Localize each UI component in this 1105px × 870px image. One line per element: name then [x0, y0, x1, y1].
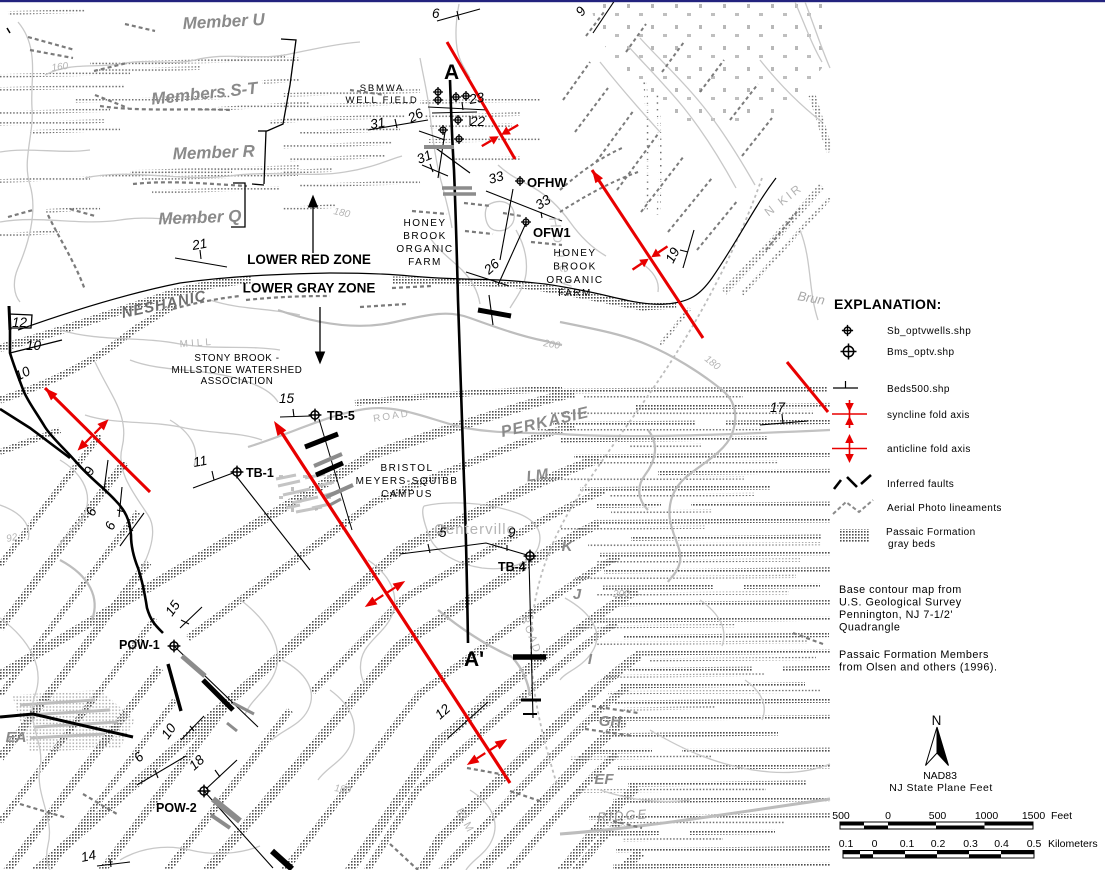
svg-text:31: 31 [415, 147, 435, 167]
svg-text:10: 10 [26, 338, 42, 353]
svg-text:FARM: FARM [408, 257, 442, 268]
svg-text:9: 9 [508, 525, 516, 540]
svg-text:Brun: Brun [796, 288, 826, 308]
svg-text:9: 9 [81, 464, 98, 477]
svg-text:200: 200 [541, 338, 561, 352]
svg-text:U.S. Geological Survey: U.S. Geological Survey [839, 597, 962, 609]
svg-text:0.4: 0.4 [994, 838, 1009, 850]
svg-text:26: 26 [480, 256, 502, 278]
svg-text:Quadrangle: Quadrangle [839, 622, 900, 634]
svg-text:BROOK: BROOK [553, 262, 597, 273]
svg-text:FARM: FARM [558, 288, 592, 299]
svg-text:5: 5 [439, 525, 447, 540]
svg-text:Feet: Feet [1051, 810, 1072, 822]
svg-text:180: 180 [702, 354, 722, 373]
svg-text:500: 500 [832, 810, 850, 822]
svg-text:HONEY: HONEY [403, 218, 446, 229]
svg-text:STONY BROOK -: STONY BROOK - [194, 353, 279, 364]
svg-text:WELL FIELD: WELL FIELD [345, 95, 418, 106]
svg-text:NJ State Plane Feet: NJ State Plane Feet [889, 782, 992, 794]
svg-text:Kilometers: Kilometers [1048, 838, 1098, 850]
svg-text:POW-2: POW-2 [156, 801, 197, 815]
svg-text:22: 22 [469, 114, 486, 129]
svg-text:Member R: Member R [172, 142, 256, 164]
svg-text:0.5: 0.5 [1027, 838, 1042, 850]
svg-text:Base contour map from: Base contour map from [839, 584, 962, 596]
svg-text:ORGANIC: ORGANIC [396, 244, 453, 255]
svg-text:21: 21 [190, 236, 208, 254]
svg-text:Bms_optv.shp: Bms_optv.shp [887, 347, 954, 358]
svg-text:33: 33 [487, 168, 506, 187]
svg-text:TB-4: TB-4 [498, 560, 526, 574]
svg-text:BROOK: BROOK [403, 231, 447, 242]
svg-text:0.1: 0.1 [900, 838, 915, 850]
svg-text:200: 200 [612, 589, 630, 600]
svg-text:Aerial Photo lineaments: Aerial Photo lineaments [887, 503, 1002, 514]
svg-text:RIDGE: RIDGE [597, 806, 649, 825]
svg-text:I: I [588, 651, 593, 668]
svg-text:92: 92 [5, 532, 19, 545]
svg-text:Passaic Formation Members: Passaic Formation Members [839, 649, 989, 661]
svg-text:EA: EA [6, 729, 27, 746]
svg-text:0.3: 0.3 [963, 838, 978, 850]
svg-text:ROAD: ROAD [518, 614, 543, 655]
svg-text:OFHW: OFHW [527, 175, 567, 190]
svg-text:MILLSTONE WATERSHED: MILLSTONE WATERSHED [172, 365, 303, 376]
svg-text:MEYERS-SQUIBB: MEYERS-SQUIBB [356, 476, 459, 487]
svg-text:syncline fold axis: syncline fold axis [887, 410, 970, 421]
svg-text:LOWER GRAY ZONE: LOWER GRAY ZONE [243, 281, 376, 296]
svg-text:TB-1: TB-1 [246, 466, 274, 480]
svg-text:6: 6 [432, 6, 440, 21]
svg-text:anticline fold axis: anticline fold axis [887, 444, 971, 455]
svg-text:500: 500 [929, 810, 947, 822]
svg-text:180: 180 [334, 783, 352, 796]
svg-text:23: 23 [467, 89, 486, 107]
svg-text:15: 15 [162, 597, 183, 618]
svg-text:160: 160 [51, 61, 69, 74]
svg-text:LM: LM [525, 466, 549, 486]
svg-text:9: 9 [573, 3, 590, 19]
svg-text:31: 31 [369, 115, 386, 132]
svg-text:15: 15 [279, 391, 295, 406]
svg-text:N: N [932, 713, 942, 728]
svg-text:17: 17 [770, 400, 786, 415]
svg-text:CAMPUS: CAMPUS [381, 489, 433, 500]
svg-text:0.2: 0.2 [931, 838, 946, 850]
svg-text:12: 12 [432, 701, 454, 723]
svg-text:Members S-T: Members S-T [150, 78, 260, 108]
svg-text:K: K [562, 538, 574, 555]
svg-text:0: 0 [885, 810, 891, 822]
svg-text:A: A [444, 61, 459, 84]
svg-text:LOWER RED ZONE: LOWER RED ZONE [247, 252, 371, 267]
svg-text:EF: EF [594, 771, 614, 788]
svg-text:POW-1: POW-1 [119, 638, 160, 652]
svg-text:10: 10 [158, 720, 179, 741]
svg-text:Member U: Member U [182, 10, 266, 33]
svg-text:MILL: MILL [179, 337, 214, 350]
svg-text:SBMWA: SBMWA [360, 83, 405, 94]
svg-text:TB-5: TB-5 [327, 409, 355, 423]
svg-text:gray beds: gray beds [888, 539, 936, 550]
svg-text:Member Q: Member Q [158, 207, 242, 229]
svg-text:BRISTOL: BRISTOL [380, 463, 433, 474]
svg-text:OFW1: OFW1 [533, 225, 571, 240]
svg-text:Beds500.shp: Beds500.shp [887, 384, 950, 395]
svg-text:6: 6 [102, 519, 119, 532]
svg-text:ORGANIC: ORGANIC [546, 275, 603, 286]
svg-text:J: J [573, 586, 582, 603]
svg-text:14: 14 [80, 847, 98, 865]
svg-text:1500: 1500 [1022, 810, 1046, 822]
svg-text:GH: GH [599, 713, 623, 730]
svg-text:ASSOCIATION: ASSOCIATION [201, 376, 274, 387]
svg-text:Sb_optvwells.shp: Sb_optvwells.shp [887, 326, 971, 337]
svg-text:0.1: 0.1 [839, 838, 854, 850]
svg-text:180: 180 [332, 206, 351, 220]
svg-text:HONEY: HONEY [553, 248, 596, 259]
svg-text:Pennington, NJ 7-1/2': Pennington, NJ 7-1/2' [839, 609, 953, 621]
svg-text:0: 0 [872, 838, 878, 850]
svg-text:11: 11 [192, 453, 208, 470]
svg-text:NAD83: NAD83 [923, 770, 957, 782]
svg-text:Inferred faults: Inferred faults [887, 479, 954, 490]
svg-text:1000: 1000 [975, 810, 999, 822]
svg-text:A': A' [464, 648, 484, 671]
svg-text:Passaic Formation: Passaic Formation [886, 527, 976, 538]
svg-text:12: 12 [12, 315, 28, 330]
svg-text:from Olsen and others (1996).: from Olsen and others (1996). [839, 662, 998, 674]
svg-text:EXPLANATION:: EXPLANATION: [834, 296, 942, 312]
svg-text:33: 33 [533, 192, 554, 213]
svg-text:ROAD: ROAD [373, 408, 411, 425]
